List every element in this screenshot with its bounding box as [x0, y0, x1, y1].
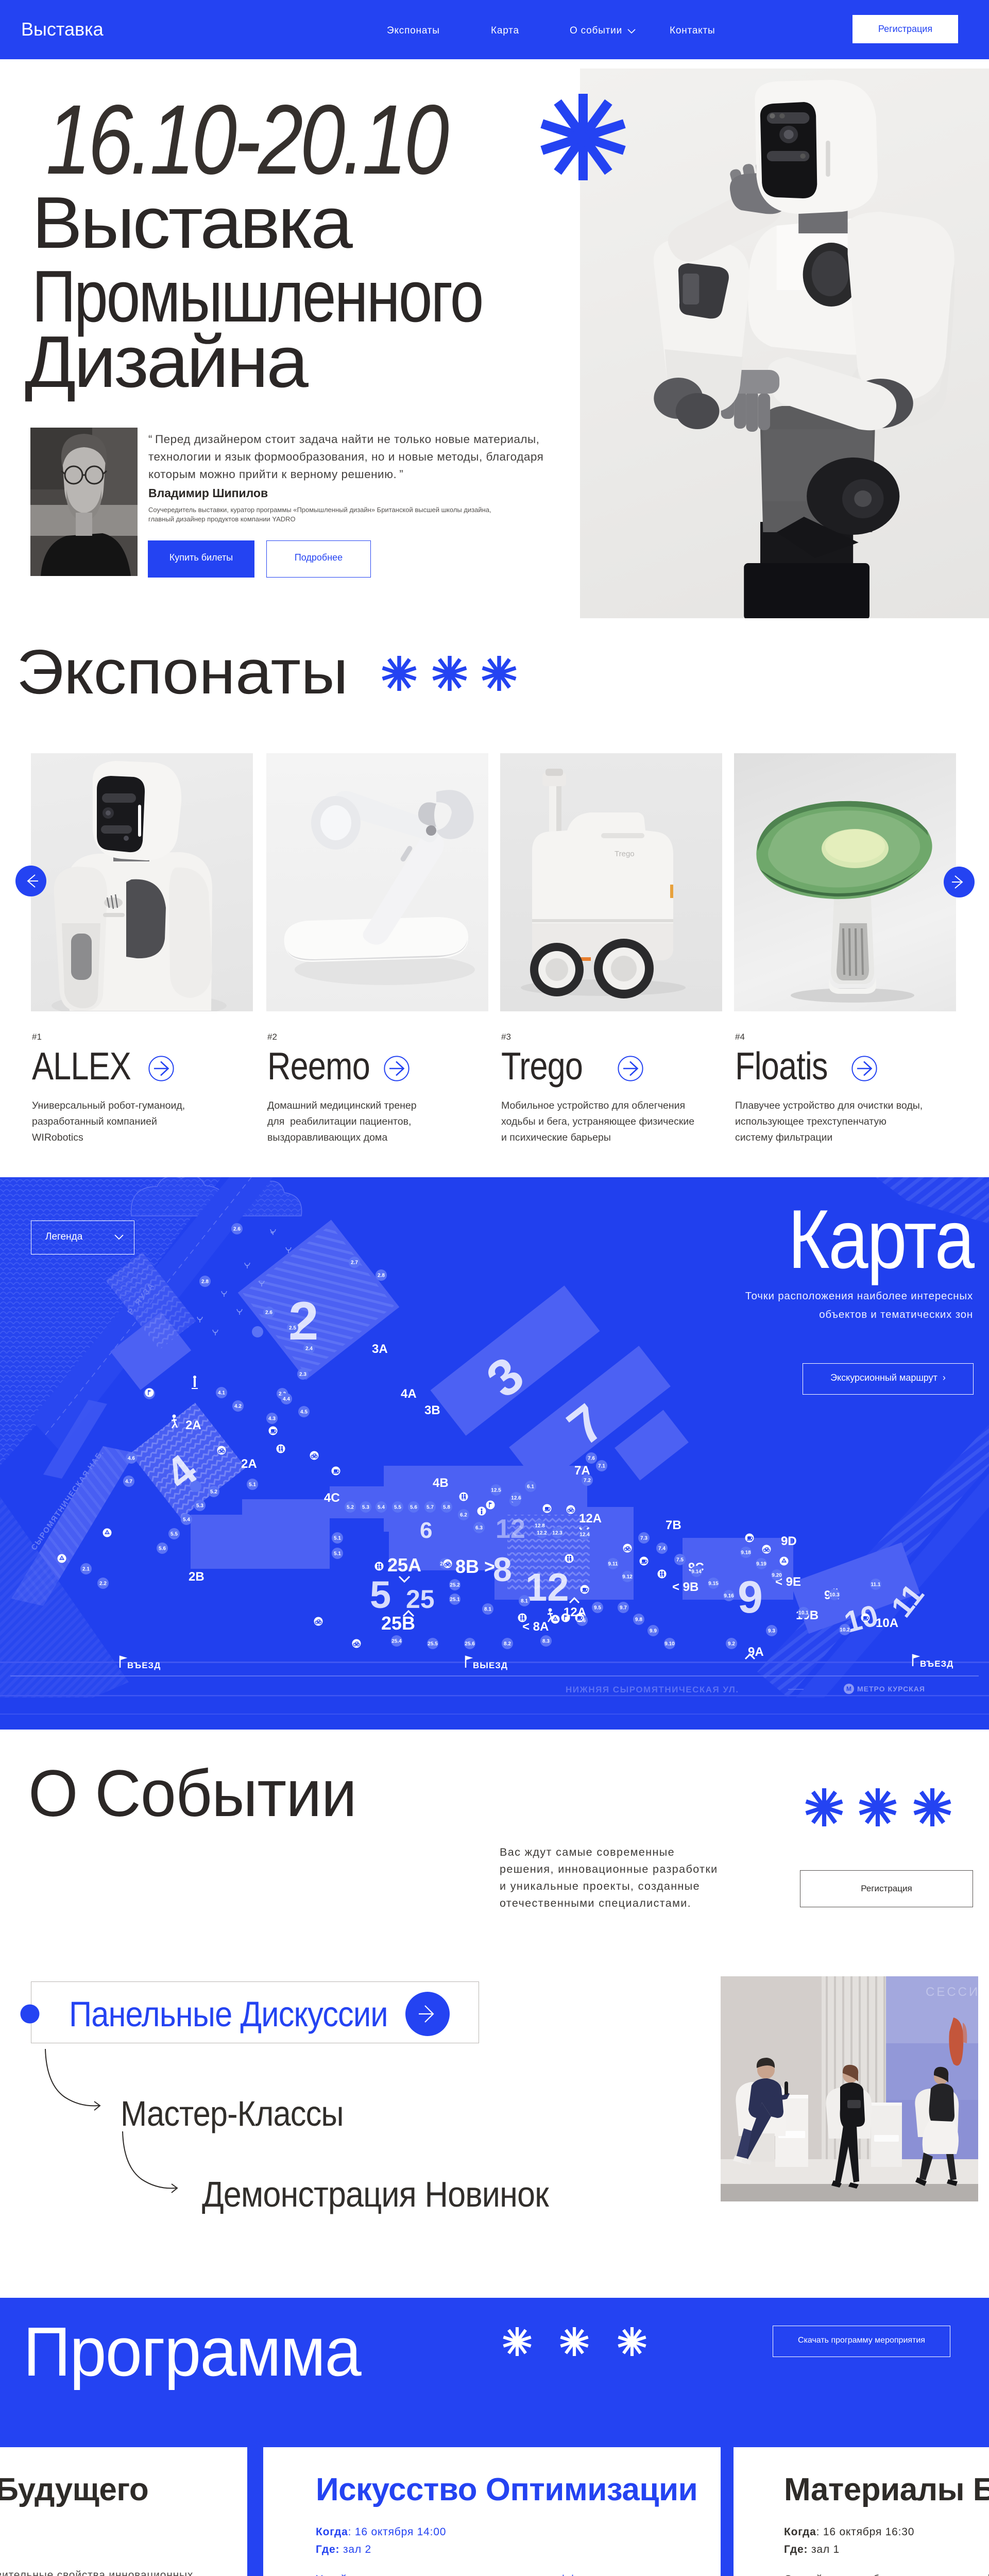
- svg-text:8.1: 8.1: [521, 1599, 528, 1604]
- svg-text:5.5: 5.5: [170, 1532, 178, 1537]
- svg-text:5: 5: [370, 1573, 391, 1616]
- svg-text:8.1: 8.1: [484, 1607, 491, 1613]
- svg-text:10A: 10A: [876, 1616, 898, 1630]
- svg-text:12.6: 12.6: [511, 1496, 521, 1501]
- svg-text:9D: 9D: [781, 1534, 797, 1548]
- svg-text:25: 25: [406, 1585, 435, 1614]
- svg-text:4.1: 4.1: [218, 1391, 225, 1396]
- svg-text:9.12: 9.12: [622, 1574, 633, 1580]
- svg-text:4.6: 4.6: [128, 1456, 135, 1462]
- svg-text:7В: 7В: [666, 1518, 681, 1532]
- svg-text:Trego: Trego: [615, 850, 635, 858]
- svg-text:6: 6: [420, 1518, 432, 1543]
- svg-text:10.2: 10.2: [840, 1628, 850, 1633]
- svg-text:9.9: 9.9: [650, 1629, 657, 1634]
- svg-text:8В >: 8В >: [455, 1556, 495, 1577]
- svg-text:2.6: 2.6: [233, 1227, 241, 1232]
- svg-text:4.4: 4.4: [283, 1397, 290, 1402]
- svg-text:< 9В: < 9В: [672, 1580, 698, 1594]
- svg-text:4С: 4С: [324, 1491, 340, 1505]
- svg-text:2.8: 2.8: [378, 1273, 385, 1279]
- svg-text:5.1: 5.1: [249, 1482, 256, 1488]
- svg-text:5.7: 5.7: [427, 1505, 434, 1511]
- svg-text:9.11: 9.11: [608, 1562, 618, 1567]
- svg-text:5.8: 5.8: [443, 1505, 450, 1511]
- svg-text:5.5: 5.5: [394, 1505, 401, 1511]
- svg-text:8.2: 8.2: [504, 1641, 511, 1647]
- svg-text:МЕТРО КУРСКАЯ: МЕТРО КУРСКАЯ: [857, 1685, 925, 1693]
- svg-text:6.2: 6.2: [460, 1513, 467, 1518]
- svg-text:25.4: 25.4: [391, 1639, 402, 1645]
- svg-text:25.2: 25.2: [450, 1583, 460, 1588]
- svg-text:3В: 3В: [424, 1403, 440, 1417]
- svg-text:3A: 3A: [372, 1342, 388, 1356]
- svg-text:4.5: 4.5: [300, 1410, 308, 1415]
- svg-text:9.5: 9.5: [594, 1605, 601, 1611]
- svg-text:7.2: 7.2: [584, 1478, 591, 1484]
- svg-text:9.14: 9.14: [691, 1569, 702, 1575]
- svg-text:12: 12: [525, 1566, 569, 1609]
- svg-text:12A: 12A: [579, 1512, 602, 1526]
- svg-text:ВЪЕЗД: ВЪЕЗД: [920, 1659, 953, 1669]
- svg-text:25В: 25В: [381, 1613, 415, 1634]
- svg-text:5.6: 5.6: [410, 1505, 417, 1511]
- svg-text:< 8A: < 8A: [522, 1620, 549, 1634]
- svg-text:10.1: 10.1: [798, 1611, 809, 1616]
- svg-text:25.5: 25.5: [428, 1641, 438, 1647]
- svg-text:9.8: 9.8: [635, 1617, 642, 1623]
- svg-text:9.10: 9.10: [664, 1641, 675, 1647]
- svg-text:5.4: 5.4: [378, 1505, 385, 1511]
- svg-text:4.3: 4.3: [268, 1416, 276, 1422]
- svg-text:5.2: 5.2: [347, 1505, 354, 1511]
- svg-text:5.1: 5.1: [334, 1536, 341, 1541]
- svg-text:6.3: 6.3: [475, 1526, 483, 1531]
- svg-text:25.1: 25.1: [450, 1597, 460, 1603]
- svg-text:7.3: 7.3: [640, 1536, 647, 1541]
- svg-text:2A: 2A: [241, 1457, 257, 1471]
- svg-text:9.3: 9.3: [768, 1629, 775, 1634]
- svg-text:25.6: 25.6: [465, 1641, 475, 1647]
- svg-text:СЕССИЯ: СЕССИЯ: [926, 1985, 978, 1999]
- svg-text:8.3: 8.3: [542, 1639, 550, 1645]
- svg-text:2В: 2В: [189, 1570, 204, 1584]
- svg-text:9.2: 9.2: [728, 1641, 735, 1647]
- svg-text:4.7: 4.7: [125, 1479, 132, 1485]
- svg-text:НИЖНЯЯ СЫРОМЯТНИЧЕСКАЯ УЛ.: НИЖНЯЯ СЫРОМЯТНИЧЕСКАЯ УЛ.: [566, 1685, 739, 1694]
- svg-text:2.2: 2.2: [99, 1581, 107, 1587]
- svg-text:9.19: 9.19: [756, 1562, 766, 1567]
- svg-text:11.1: 11.1: [871, 1582, 881, 1588]
- svg-text:12.2: 12.2: [537, 1531, 547, 1536]
- svg-text:5.2: 5.2: [210, 1489, 217, 1495]
- svg-text:9.15: 9.15: [708, 1581, 719, 1587]
- svg-text:25A: 25A: [387, 1554, 421, 1575]
- svg-text:4A: 4A: [401, 1387, 417, 1401]
- svg-text:12.4: 12.4: [579, 1532, 590, 1538]
- svg-text:7.1: 7.1: [598, 1464, 605, 1469]
- svg-text:2.5: 2.5: [289, 1326, 296, 1331]
- svg-text:7.6: 7.6: [588, 1456, 595, 1462]
- svg-text:12.5: 12.5: [491, 1488, 501, 1494]
- svg-text:2.4: 2.4: [305, 1346, 313, 1352]
- svg-text:4В: 4В: [433, 1476, 449, 1490]
- svg-text:2A: 2A: [185, 1418, 201, 1432]
- svg-text:7.5: 7.5: [676, 1557, 684, 1563]
- svg-text:7.4: 7.4: [658, 1546, 666, 1552]
- svg-text:9.16: 9.16: [724, 1594, 734, 1599]
- svg-text:5.6: 5.6: [159, 1546, 166, 1552]
- svg-text:9: 9: [738, 1571, 763, 1622]
- svg-text:12.3: 12.3: [552, 1531, 562, 1536]
- svg-text:2: 2: [288, 1291, 318, 1351]
- svg-text:6.1: 6.1: [527, 1484, 534, 1490]
- svg-text:5.3: 5.3: [196, 1503, 203, 1509]
- svg-text:ВЪЕЗД: ВЪЕЗД: [127, 1660, 161, 1670]
- svg-text:2.7: 2.7: [351, 1260, 358, 1266]
- svg-text:5.4: 5.4: [183, 1517, 190, 1523]
- svg-text:2.1: 2.1: [82, 1567, 90, 1572]
- svg-text:4.2: 4.2: [234, 1404, 242, 1410]
- svg-text:9.18: 9.18: [741, 1550, 751, 1556]
- svg-text:5.3: 5.3: [362, 1505, 369, 1511]
- svg-text:12: 12: [496, 1514, 525, 1544]
- svg-text:M: M: [846, 1685, 851, 1692]
- svg-text:2.6: 2.6: [265, 1310, 272, 1316]
- svg-text:8: 8: [493, 1550, 512, 1588]
- svg-text:2.8: 2.8: [201, 1279, 209, 1285]
- svg-text:9.20: 9.20: [772, 1573, 782, 1579]
- svg-text:ВЫЕЗД: ВЫЕЗД: [473, 1660, 508, 1670]
- svg-text:10.3: 10.3: [829, 1592, 840, 1598]
- svg-text:2.3: 2.3: [299, 1372, 306, 1378]
- svg-text:9.7: 9.7: [620, 1605, 627, 1611]
- svg-text:9A: 9A: [748, 1645, 764, 1659]
- svg-text:5.1: 5.1: [334, 1551, 341, 1557]
